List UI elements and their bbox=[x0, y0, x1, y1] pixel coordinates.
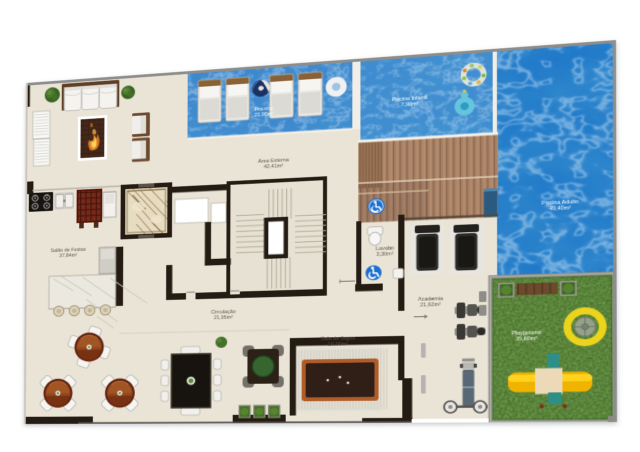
svg-text:19,00m²: 19,00m² bbox=[328, 341, 348, 348]
svg-text:21,62m²: 21,62m² bbox=[420, 302, 441, 309]
svg-text:42,41m²: 42,41m² bbox=[264, 163, 284, 170]
svg-text:37,84m²: 37,84m² bbox=[59, 252, 77, 259]
svg-text:7,90m²: 7,90m² bbox=[401, 101, 419, 109]
svg-text:21,95m²: 21,95m² bbox=[214, 315, 234, 322]
svg-text:22,90m²: 22,90m² bbox=[254, 111, 274, 119]
svg-text:3,30m²: 3,30m² bbox=[376, 251, 394, 258]
svg-text:35,00m²: 35,00m² bbox=[516, 336, 538, 343]
svg-text:49,40m²: 49,40m² bbox=[549, 205, 571, 213]
svg-text:Sala de Jogos: Sala de Jogos bbox=[321, 335, 356, 342]
